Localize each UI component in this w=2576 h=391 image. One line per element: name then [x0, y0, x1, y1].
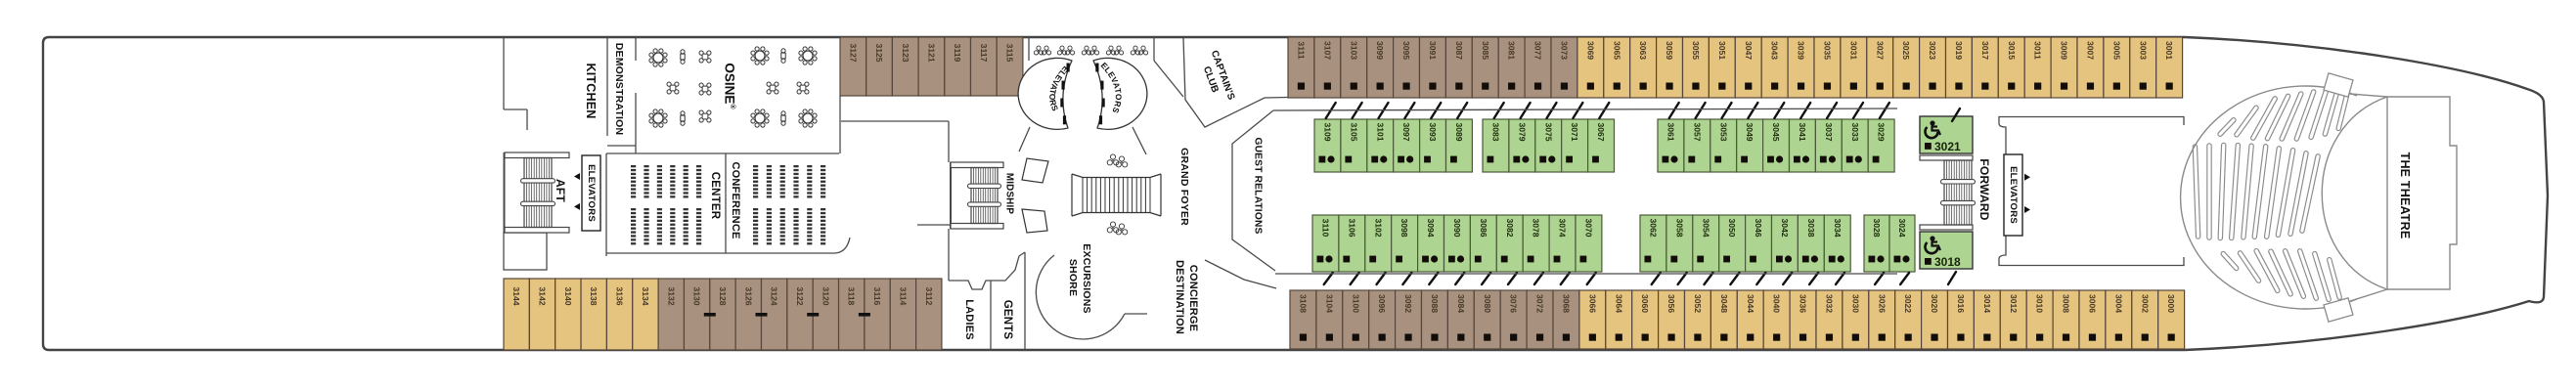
svg-text:3045: 3045 — [1771, 122, 1781, 141]
svg-text:3057: 3057 — [1692, 122, 1702, 141]
svg-text:3122: 3122 — [795, 286, 805, 305]
svg-text:3085: 3085 — [1481, 41, 1490, 60]
svg-text:3022: 3022 — [1903, 294, 1913, 313]
svg-text:3110: 3110 — [1321, 219, 1331, 238]
svg-text:3128: 3128 — [718, 286, 728, 305]
svg-text:3138: 3138 — [589, 286, 599, 305]
svg-text:3023: 3023 — [1928, 41, 1937, 60]
svg-text:3011: 3011 — [2033, 41, 2043, 60]
svg-text:3092: 3092 — [1403, 294, 1413, 313]
svg-text:GENTS: GENTS — [1001, 300, 1013, 340]
svg-text:3042: 3042 — [1780, 218, 1790, 237]
svg-text:3123: 3123 — [901, 43, 910, 62]
svg-text:3031: 3031 — [1848, 41, 1858, 60]
svg-text:3099: 3099 — [1375, 41, 1385, 60]
svg-text:3017: 3017 — [1980, 41, 1990, 60]
svg-text:3066: 3066 — [1587, 294, 1597, 313]
svg-text:3037: 3037 — [1824, 122, 1834, 141]
svg-text:3038: 3038 — [1806, 218, 1816, 237]
svg-text:3103: 3103 — [1349, 41, 1358, 60]
svg-text:3061: 3061 — [1666, 122, 1676, 141]
svg-text:3010: 3010 — [2035, 294, 2045, 313]
svg-text:3091: 3091 — [1428, 41, 1438, 60]
svg-text:3056: 3056 — [1666, 294, 1676, 313]
svg-text:3024: 3024 — [1897, 218, 1907, 237]
svg-text:SHORE: SHORE — [1067, 259, 1079, 296]
svg-text:3077: 3077 — [1533, 41, 1543, 60]
svg-text:3001: 3001 — [2164, 41, 2174, 60]
svg-text:GUEST RELATIONS: GUEST RELATIONS — [1253, 137, 1264, 234]
svg-text:3054: 3054 — [1701, 218, 1710, 237]
svg-text:3090: 3090 — [1452, 218, 1462, 237]
svg-text:3088: 3088 — [1430, 294, 1440, 313]
svg-text:3007: 3007 — [2086, 41, 2096, 60]
svg-text:3016: 3016 — [1956, 294, 1966, 313]
svg-text:3102: 3102 — [1373, 218, 1383, 237]
svg-text:3069: 3069 — [1585, 41, 1595, 60]
svg-text:3082: 3082 — [1505, 218, 1515, 237]
svg-text:3076: 3076 — [1509, 294, 1519, 313]
svg-text:3136: 3136 — [615, 286, 625, 305]
svg-text:3112: 3112 — [924, 287, 934, 306]
svg-text:AFT: AFT — [554, 179, 567, 202]
svg-text:3144: 3144 — [511, 286, 521, 305]
svg-text:DESTINATION: DESTINATION — [1174, 260, 1185, 334]
svg-text:KITCHEN: KITCHEN — [584, 64, 598, 119]
svg-text:3118: 3118 — [847, 287, 857, 306]
svg-text:GRAND FOYER: GRAND FOYER — [1178, 148, 1190, 226]
svg-text:3008: 3008 — [2062, 294, 2071, 313]
svg-text:3074: 3074 — [1558, 218, 1568, 237]
svg-text:3064: 3064 — [1614, 294, 1623, 313]
svg-text:3046: 3046 — [1754, 218, 1763, 237]
svg-text:DEMONSTRATION: DEMONSTRATION — [613, 43, 625, 136]
svg-text:3009: 3009 — [2060, 41, 2069, 60]
svg-text:3072: 3072 — [1535, 294, 1545, 313]
svg-text:3043: 3043 — [1770, 41, 1780, 60]
svg-text:3140: 3140 — [563, 286, 573, 305]
svg-text:3051: 3051 — [1717, 41, 1727, 60]
svg-text:3005: 3005 — [2111, 41, 2121, 60]
svg-text:3047: 3047 — [1744, 41, 1754, 60]
svg-text:3120: 3120 — [821, 286, 830, 305]
svg-text:3006: 3006 — [2088, 294, 2098, 313]
svg-text:3055: 3055 — [1691, 41, 1701, 60]
svg-text:3119: 3119 — [953, 44, 962, 63]
svg-text:3106: 3106 — [1347, 218, 1356, 237]
svg-text:CENTER: CENTER — [709, 172, 721, 220]
svg-text:3107: 3107 — [1322, 41, 1332, 60]
svg-text:3070: 3070 — [1584, 218, 1594, 237]
svg-text:3027: 3027 — [1875, 41, 1885, 60]
svg-text:3060: 3060 — [1640, 294, 1650, 313]
svg-text:3097: 3097 — [1401, 122, 1411, 141]
svg-text:3062: 3062 — [1649, 218, 1659, 237]
svg-text:3105: 3105 — [1349, 122, 1358, 141]
svg-text:LADIES: LADIES — [963, 299, 975, 340]
svg-text:3004: 3004 — [2113, 294, 2123, 313]
svg-text:3003: 3003 — [2138, 41, 2148, 60]
svg-text:3052: 3052 — [1693, 294, 1703, 313]
svg-text:3104: 3104 — [1324, 294, 1334, 313]
svg-text:3063: 3063 — [1638, 41, 1648, 60]
svg-text:3130: 3130 — [692, 286, 702, 305]
svg-text:3036: 3036 — [1799, 294, 1808, 313]
svg-text:3002: 3002 — [2140, 294, 2150, 313]
svg-text:3071: 3071 — [1570, 122, 1579, 141]
svg-text:3086: 3086 — [1479, 218, 1488, 237]
svg-text:3098: 3098 — [1399, 218, 1409, 237]
svg-text:3059: 3059 — [1665, 41, 1674, 60]
svg-text:3029: 3029 — [1877, 122, 1887, 141]
svg-text:3065: 3065 — [1612, 41, 1621, 60]
svg-text:3111: 3111 — [1297, 41, 1307, 59]
svg-text:3035: 3035 — [1823, 41, 1833, 60]
svg-text:3068: 3068 — [1562, 294, 1572, 313]
svg-text:3028: 3028 — [1872, 218, 1882, 237]
svg-text:3049: 3049 — [1745, 122, 1754, 141]
svg-text:3121: 3121 — [927, 43, 937, 62]
svg-text:3020: 3020 — [1930, 294, 1939, 313]
svg-text:ELEVATORS: ELEVATORS — [586, 164, 597, 222]
svg-text:3075: 3075 — [1543, 122, 1553, 141]
svg-text:3116: 3116 — [872, 287, 882, 306]
svg-text:3089: 3089 — [1454, 122, 1464, 141]
svg-text:FORWARD: FORWARD — [1977, 158, 1991, 220]
svg-text:3124: 3124 — [770, 286, 779, 305]
svg-text:3132: 3132 — [666, 286, 676, 305]
svg-text:3100: 3100 — [1351, 294, 1360, 313]
svg-text:3114: 3114 — [898, 287, 908, 306]
svg-text:3126: 3126 — [743, 286, 753, 305]
svg-text:3041: 3041 — [1798, 122, 1807, 141]
svg-text:THE THEATRE: THE THEATRE — [2398, 152, 2412, 239]
svg-text:3087: 3087 — [1454, 41, 1464, 60]
svg-text:3096: 3096 — [1377, 294, 1387, 313]
svg-text:3053: 3053 — [1718, 122, 1728, 141]
svg-text:3115: 3115 — [1005, 44, 1015, 63]
svg-text:3108: 3108 — [1299, 294, 1309, 313]
svg-text:3039: 3039 — [1797, 41, 1806, 60]
svg-text:3134: 3134 — [641, 286, 650, 305]
svg-text:3093: 3093 — [1428, 122, 1438, 141]
svg-text:CONCIERGE: CONCIERGE — [1187, 265, 1199, 331]
svg-text:3083: 3083 — [1491, 122, 1501, 141]
svg-text:3078: 3078 — [1532, 218, 1541, 237]
svg-text:3014: 3014 — [1982, 294, 1992, 313]
svg-text:3101: 3101 — [1375, 122, 1385, 141]
svg-text:3095: 3095 — [1401, 41, 1411, 60]
svg-text:3040: 3040 — [1772, 294, 1782, 313]
svg-text:3033: 3033 — [1850, 122, 1860, 141]
svg-text:3015: 3015 — [2007, 41, 2017, 60]
svg-text:3084: 3084 — [1456, 294, 1466, 313]
svg-text:3018: 3018 — [1934, 255, 1961, 269]
svg-text:3032: 3032 — [1825, 294, 1835, 313]
svg-text:3127: 3127 — [848, 43, 858, 62]
svg-text:3048: 3048 — [1719, 294, 1729, 313]
svg-text:EXCURSIONS: EXCURSIONS — [1081, 243, 1092, 313]
svg-text:3058: 3058 — [1674, 218, 1684, 237]
svg-text:3012: 3012 — [2009, 294, 2019, 313]
svg-text:3073: 3073 — [1560, 41, 1570, 60]
svg-text:MIDSHIP: MIDSHIP — [1004, 173, 1015, 214]
svg-text:3125: 3125 — [874, 43, 884, 62]
svg-text:3050: 3050 — [1727, 218, 1737, 237]
svg-text:3034: 3034 — [1833, 218, 1843, 237]
svg-text:3019: 3019 — [1954, 41, 1964, 60]
svg-text:3026: 3026 — [1877, 294, 1887, 313]
svg-text:3021: 3021 — [1934, 140, 1961, 153]
svg-text:3094: 3094 — [1426, 218, 1436, 237]
svg-text:CONFERENCE: CONFERENCE — [730, 161, 741, 239]
svg-text:3117: 3117 — [979, 44, 989, 63]
svg-text:3067: 3067 — [1596, 122, 1606, 141]
svg-text:3000: 3000 — [2166, 294, 2176, 313]
svg-text:3025: 3025 — [1901, 41, 1911, 60]
svg-text:OSINE®: OSINE® — [723, 63, 737, 109]
svg-text:3079: 3079 — [1517, 122, 1527, 141]
svg-text:3080: 3080 — [1483, 294, 1492, 313]
svg-text:3044: 3044 — [1746, 294, 1755, 313]
svg-text:ELEVATORS: ELEVATORS — [2008, 166, 2019, 224]
svg-text:3081: 3081 — [1507, 41, 1517, 60]
svg-text:3142: 3142 — [538, 286, 548, 305]
svg-text:3030: 3030 — [1850, 294, 1860, 313]
svg-text:3109: 3109 — [1323, 122, 1333, 141]
